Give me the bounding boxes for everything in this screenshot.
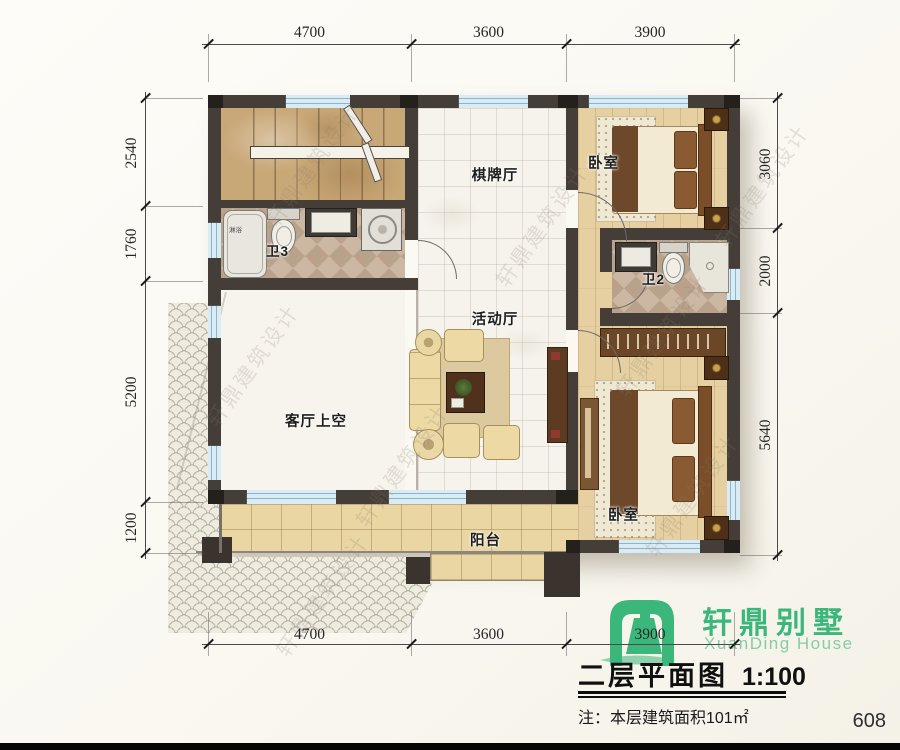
dimension-line xyxy=(777,92,778,561)
nightstand xyxy=(704,356,729,380)
window xyxy=(285,95,352,108)
wall-segment xyxy=(600,240,612,272)
dimension-label: 4700 xyxy=(208,626,411,644)
window xyxy=(208,445,221,482)
nightstand xyxy=(704,207,729,230)
floor-plan-page: 淋浴 棋牌厅 卧室 卫3 卫2 xyxy=(0,0,900,750)
side-cabinet-slat xyxy=(585,408,591,478)
drawing-note: 注：本层建筑面积101㎡ xyxy=(578,704,749,728)
dimension-label: 1760 xyxy=(123,212,141,276)
dimension-label: 3060 xyxy=(757,132,775,196)
room-label-living-void: 客厅上空 xyxy=(276,410,356,431)
sofa xyxy=(409,349,441,431)
pillow xyxy=(674,131,697,169)
bathtub-inner xyxy=(227,214,263,274)
stair-handrail xyxy=(250,146,410,159)
bed-headboard xyxy=(698,124,712,216)
wall-segment xyxy=(566,228,578,240)
pillar xyxy=(544,552,580,597)
extension-line xyxy=(145,206,203,207)
plant xyxy=(455,379,472,396)
bed-headboard xyxy=(698,386,712,518)
porch-step xyxy=(430,553,548,581)
dimension-label: 3600 xyxy=(411,626,566,644)
column xyxy=(400,95,418,108)
extension-line xyxy=(145,553,203,554)
pillow xyxy=(674,171,697,209)
room-label-bedroom-bottom: 卧室 xyxy=(608,504,639,525)
column xyxy=(208,95,223,108)
footer-bar xyxy=(0,743,900,750)
dimension-label: 5200 xyxy=(123,360,141,424)
column xyxy=(566,540,580,553)
tv-cabinet xyxy=(547,347,568,443)
window xyxy=(388,490,468,504)
tv-cabinet-knob xyxy=(551,430,560,438)
wall-segment xyxy=(566,108,578,190)
page-number: 608 xyxy=(826,710,886,733)
balcony-left-rail xyxy=(219,504,222,553)
room-label-text: 卧室 xyxy=(608,508,639,524)
pillow xyxy=(672,398,695,444)
living-void-floor xyxy=(221,290,405,490)
balcony-slab-edge xyxy=(196,551,586,553)
wall-segment xyxy=(600,308,612,313)
title-underline xyxy=(578,691,786,694)
dimension-label: 2540 xyxy=(123,121,141,185)
window xyxy=(458,95,530,108)
window xyxy=(246,490,338,504)
room-label-text: 卫2 xyxy=(642,272,665,287)
room-label-chess-hall: 棋牌厅 xyxy=(462,164,528,185)
dimension-label: 5640 xyxy=(757,403,775,467)
pillar xyxy=(202,537,232,563)
window xyxy=(208,222,221,260)
shower-label-text: 淋浴 xyxy=(229,227,242,234)
dimension-label: 1200 xyxy=(123,496,141,560)
room-label-text: 活动厅 xyxy=(472,312,519,328)
pillow xyxy=(672,456,695,502)
wall-segment xyxy=(336,490,388,504)
vanity-mirror xyxy=(311,212,351,233)
window xyxy=(208,305,221,340)
dimension-label: 4700 xyxy=(208,24,411,42)
side-table xyxy=(413,429,444,460)
extension-line xyxy=(145,502,203,503)
room-label-bath3: 卫3 xyxy=(266,240,289,260)
column xyxy=(208,490,224,504)
column xyxy=(724,95,740,108)
extension-line xyxy=(145,281,203,282)
dimension-line xyxy=(202,644,740,645)
dimension-label: 3600 xyxy=(411,24,566,42)
room-label-text: 棋牌厅 xyxy=(472,168,519,184)
toilet-bowl-inner xyxy=(666,258,681,278)
drawing-scale: 1:100 xyxy=(742,663,806,692)
column xyxy=(724,540,740,553)
wardrobe-hangers xyxy=(607,334,717,349)
room-label-activity-hall: 活动厅 xyxy=(465,308,525,329)
wall-segment xyxy=(208,338,221,445)
column xyxy=(556,490,578,504)
dimension-label: 2000 xyxy=(757,239,775,303)
wall-segment xyxy=(208,200,412,208)
dimension-label: 3900 xyxy=(566,626,734,644)
extension-line xyxy=(145,98,203,99)
room-label-text: 卧室 xyxy=(588,156,619,172)
room-label-text: 客厅上空 xyxy=(285,414,347,430)
vanity-mirror xyxy=(621,247,651,267)
washing-machine-drum xyxy=(368,215,397,244)
balcony-floor xyxy=(221,504,578,553)
tv-cabinet-knob xyxy=(551,352,560,360)
room-label-bath2: 卫2 xyxy=(642,268,665,288)
drawing-title: 二层平面图 xyxy=(578,654,728,693)
drawing-title-row: 二层平面图 1:100 xyxy=(578,654,806,693)
dimension-label: 3900 xyxy=(566,24,734,42)
shower-drain xyxy=(706,262,714,270)
room-label-text: 阳台 xyxy=(470,533,501,549)
column xyxy=(558,95,578,108)
room-label-text: 卫3 xyxy=(266,244,289,259)
shower-label: 淋浴 xyxy=(229,224,242,234)
dimension-line xyxy=(202,44,740,45)
wall-segment xyxy=(405,108,418,240)
wall-segment xyxy=(727,300,740,480)
wall-segment xyxy=(208,278,418,290)
magazine xyxy=(451,398,464,408)
nightstand xyxy=(704,108,729,131)
bed-blanket xyxy=(610,390,638,514)
armchair xyxy=(444,329,484,362)
title-underline-thin xyxy=(578,696,786,698)
room-label-balcony: 阳台 xyxy=(470,529,501,550)
nightstand xyxy=(704,516,729,540)
side-table xyxy=(415,329,442,356)
window xyxy=(618,540,702,553)
armchair xyxy=(443,423,480,458)
wall-segment xyxy=(600,313,740,326)
pillar xyxy=(406,557,430,584)
armchair xyxy=(483,425,520,460)
wall-segment xyxy=(566,240,578,330)
dimension-line xyxy=(145,92,146,559)
room-label-bedroom-top: 卧室 xyxy=(588,152,619,173)
window xyxy=(588,95,690,108)
